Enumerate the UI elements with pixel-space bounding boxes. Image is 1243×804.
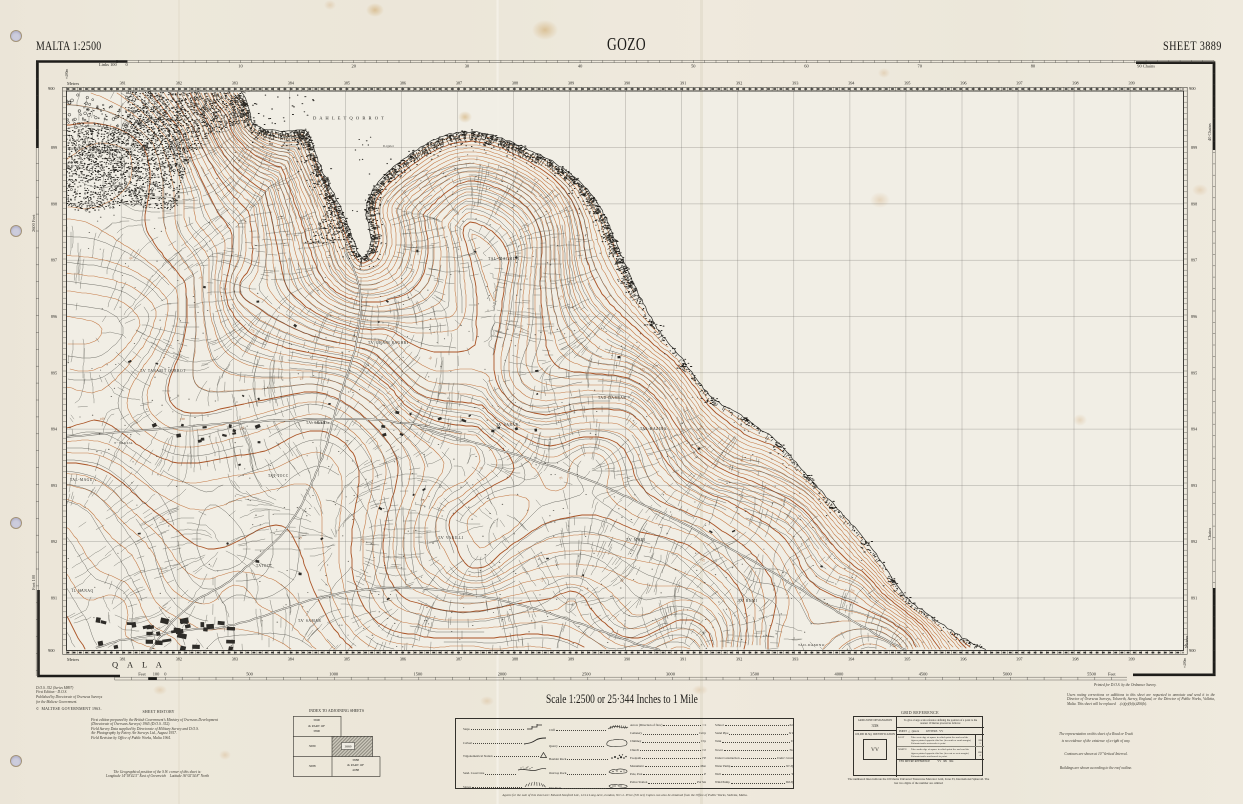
svg-text:395: 395 (904, 657, 910, 662)
svg-text:893: 893 (1191, 483, 1197, 488)
svg-text:899: 899 (1191, 145, 1197, 150)
svg-text:897: 897 (51, 258, 57, 263)
svg-text:391: 391 (680, 81, 686, 86)
svg-text:D A H L E T Q O R R O T: D A H L E T Q O R R O T (313, 116, 385, 121)
svg-text:IL-HANAQ: IL-HANAQ (72, 589, 94, 593)
svg-text:895: 895 (51, 370, 57, 375)
svg-text:2600 Feet: 2600 Feet (31, 214, 36, 232)
svg-text:TA’ VANILLI: TA’ VANILLI (438, 536, 464, 540)
svg-text:894: 894 (51, 427, 57, 432)
svg-text:2500: 2500 (582, 671, 592, 676)
svg-text:383: 383 (232, 657, 238, 662)
svg-text:385: 385 (344, 81, 350, 86)
svg-text:386: 386 (400, 657, 406, 662)
svg-text:382: 382 (176, 81, 182, 86)
svg-text:500: 500 (246, 671, 253, 676)
svg-text:IL-QORTIN IL-KBIR: IL-QORTIN IL-KBIR (62, 147, 100, 151)
svg-text:393: 393 (792, 81, 798, 86)
svg-text:TA’ SABAR: TA’ SABAR (496, 423, 519, 427)
svg-text:+400m: +400m (65, 69, 69, 79)
svg-text:TAD-DAMINO: TAD-DAMINO (798, 643, 825, 647)
svg-text:+400m: +400m (1183, 658, 1187, 668)
svg-text:894: 894 (1191, 427, 1197, 432)
svg-text:900: 900 (48, 86, 55, 91)
svg-text:891: 891 (51, 596, 57, 601)
svg-text:100: 100 (100, 417, 106, 421)
svg-text:4500: 4500 (919, 671, 929, 676)
svg-text:5000: 5000 (1003, 671, 1013, 676)
svg-text:100: 100 (153, 671, 160, 676)
svg-text:900: 900 (1189, 648, 1196, 653)
svg-text:390: 390 (624, 81, 630, 86)
svg-text:398: 398 (1072, 81, 1078, 86)
svg-text:898: 898 (1191, 201, 1197, 206)
svg-text:384: 384 (288, 657, 294, 662)
svg-text:899: 899 (51, 145, 57, 150)
svg-text:3500: 3500 (750, 671, 760, 676)
svg-text:TA’ GHAJN BAGHRI: TA’ GHAJN BAGHRI (368, 341, 409, 345)
svg-text:Feet: Feet (1108, 671, 1116, 676)
svg-text:396: 396 (960, 81, 966, 86)
svg-text:397: 397 (1016, 657, 1022, 662)
svg-text:892: 892 (1191, 539, 1197, 544)
svg-text:898: 898 (51, 201, 57, 206)
svg-text:TAL-MAGU: TAL-MAGU (70, 478, 93, 482)
svg-text:388: 388 (512, 81, 518, 86)
svg-text:394: 394 (848, 81, 854, 86)
svg-text:893: 893 (51, 483, 57, 488)
svg-text:398: 398 (1072, 657, 1078, 662)
svg-text:Links 100: Links 100 (99, 62, 117, 67)
svg-text:Feet 100: Feet 100 (31, 574, 36, 590)
svg-text:395: 395 (904, 81, 910, 86)
svg-text:Il-Qalet: Il-Qalet (383, 144, 394, 148)
svg-text:891: 891 (1191, 596, 1197, 601)
svg-text:399: 399 (1129, 657, 1135, 662)
svg-text:TAD-DABBAR: TAD-DABBAR (598, 396, 626, 400)
svg-text:389: 389 (568, 81, 574, 86)
svg-text:386: 386 (400, 81, 406, 86)
svg-text:381: 381 (120, 81, 126, 86)
svg-text:393: 393 (792, 657, 798, 662)
svg-text:399: 399 (1129, 81, 1135, 86)
svg-text:900: 900 (48, 648, 55, 653)
svg-text:40 Chains: 40 Chains (1207, 123, 1212, 141)
svg-text:896: 896 (51, 314, 57, 319)
svg-text:Metres: Metres (67, 657, 79, 662)
svg-text:TATOCC: TATOCC (256, 564, 273, 568)
svg-text:TA’ RUMI: TA’ RUMI (738, 599, 758, 603)
svg-text:Metres: Metres (1184, 636, 1189, 648)
svg-text:90 Chains: 90 Chains (1137, 64, 1155, 69)
svg-text:1500: 1500 (414, 671, 424, 676)
svg-text:892: 892 (51, 539, 57, 544)
svg-text:394: 394 (848, 657, 854, 662)
svg-text:391: 391 (680, 657, 686, 662)
svg-text:389: 389 (568, 657, 574, 662)
svg-text:3000: 3000 (666, 671, 676, 676)
svg-text:TAL-HAZINA: TAL-HAZINA (640, 427, 667, 431)
svg-text:897: 897 (1191, 258, 1197, 263)
svg-text:392: 392 (736, 657, 742, 662)
svg-text:4000: 4000 (835, 671, 845, 676)
svg-text:Feet: Feet (138, 671, 146, 676)
svg-text:TA’ SAMAR: TA’ SAMAR (298, 619, 321, 623)
svg-text:Q A L A: Q A L A (112, 660, 165, 670)
svg-text:387: 387 (456, 657, 462, 662)
svg-text:5500: 5500 (1087, 671, 1097, 676)
svg-text:397: 397 (1016, 81, 1022, 86)
svg-text:387: 387 (456, 81, 462, 86)
svg-text:388: 388 (512, 657, 518, 662)
svg-text:392: 392 (736, 81, 742, 86)
svg-text:TA’ TABARIT QORROT: TA’ TABARIT QORROT (140, 369, 186, 373)
svg-text:TAT-TOCC: TAT-TOCC (268, 474, 289, 478)
svg-text:T’ TAKIJA: T’ TAKIJA (311, 421, 330, 425)
svg-text:Chains: Chains (1207, 528, 1212, 540)
svg-text:IRDUM SAN FILEP: IRDUM SAN FILEP (168, 146, 204, 150)
svg-text:384: 384 (288, 81, 294, 86)
svg-text:383: 383 (232, 81, 238, 86)
svg-text:2000: 2000 (498, 671, 508, 676)
svg-text:900: 900 (1189, 86, 1196, 91)
svg-text:396: 396 (960, 657, 966, 662)
svg-text:1000: 1000 (329, 671, 339, 676)
svg-text:125: 125 (640, 367, 645, 371)
svg-text:Metres: Metres (67, 81, 79, 86)
svg-text:3889: 3889 (344, 745, 351, 749)
svg-text:100: 100 (180, 417, 185, 421)
svg-text:382: 382 (176, 657, 182, 662)
svg-text:385: 385 (344, 657, 350, 662)
svg-text:TA’ MURI: TA’ MURI (626, 538, 646, 542)
svg-text:896: 896 (1191, 314, 1197, 319)
svg-text:895: 895 (1191, 370, 1197, 375)
svg-text:TAL-MAGHUN: TAL-MAGHUN (488, 257, 519, 261)
svg-text:390: 390 (624, 657, 630, 662)
svg-text:T’ TAKIJA: T’ TAKIJA (114, 441, 133, 445)
